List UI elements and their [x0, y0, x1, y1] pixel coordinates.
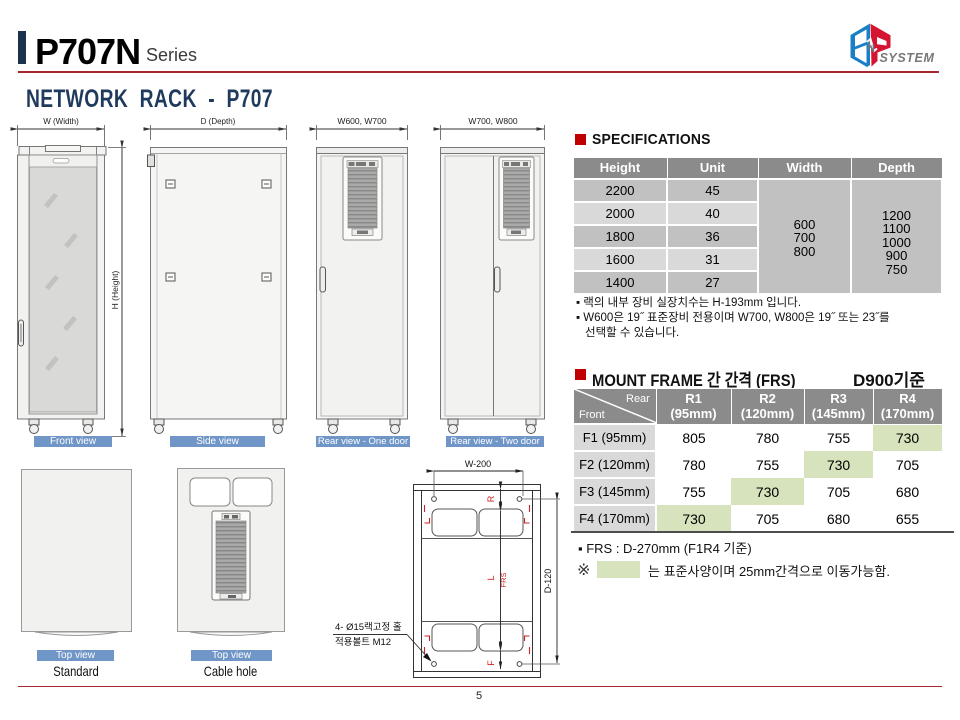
svg-text:적용볼트 M12: 적용볼트 M12 [335, 636, 391, 648]
svg-text:D (Depth): D (Depth) [201, 117, 236, 126]
svg-text:R: R [486, 495, 496, 502]
svg-text:FRS: FRS [499, 573, 508, 588]
svg-text:W-200: W-200 [465, 459, 491, 469]
svg-text:L: L [486, 575, 496, 580]
svg-text:H (Height): H (Height) [110, 270, 120, 309]
svg-text:W700, W800: W700, W800 [468, 116, 517, 126]
svg-text:4- Ø15랙고정 홀: 4- Ø15랙고정 홀 [335, 621, 402, 633]
svg-text:Front: Front [579, 409, 605, 421]
svg-text:W (Width): W (Width) [43, 117, 79, 126]
svg-text:W600, W700: W600, W700 [337, 116, 386, 126]
svg-text:D-120: D-120 [543, 569, 553, 594]
svg-text:Rear: Rear [626, 393, 650, 405]
svg-text:SYSTEM: SYSTEM [880, 51, 935, 65]
svg-text:F: F [486, 660, 496, 666]
